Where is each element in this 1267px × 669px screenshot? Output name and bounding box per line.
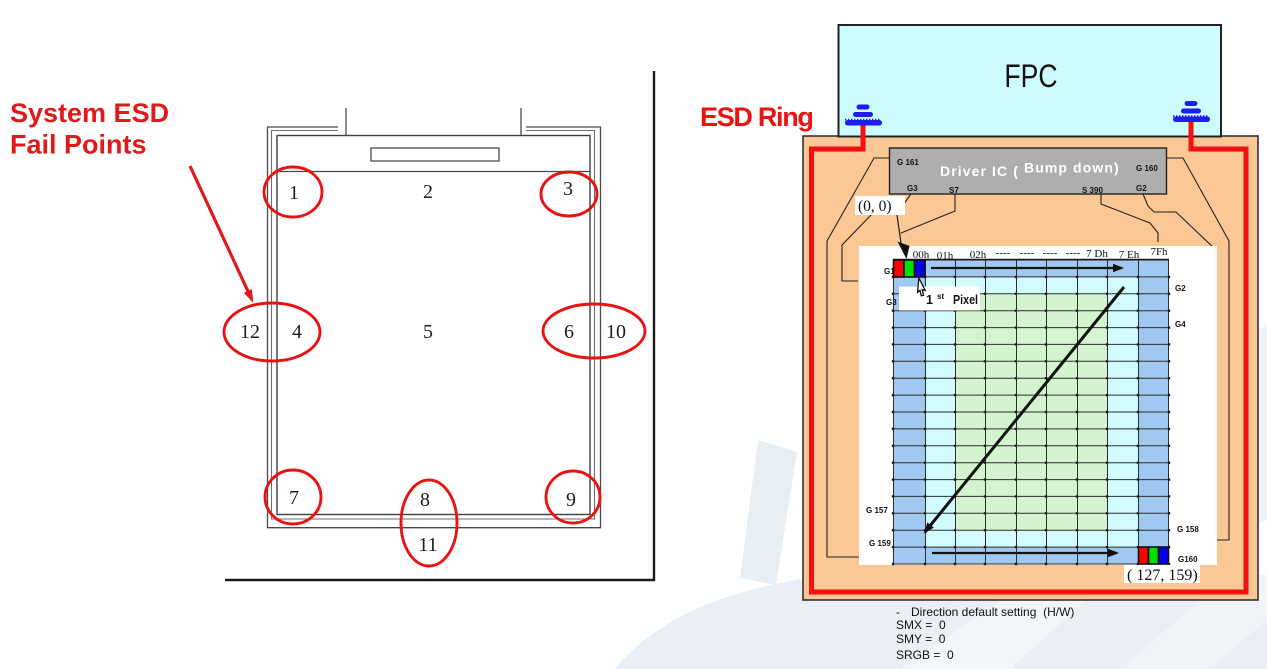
- svg-text:----: ----: [1043, 247, 1058, 259]
- svg-text:G 161: G 161: [897, 158, 919, 167]
- svg-text:G 157: G 157: [866, 506, 888, 515]
- svg-text:9: 9: [566, 489, 576, 511]
- svg-text:S7: S7: [949, 186, 959, 195]
- svg-text:----: ----: [996, 247, 1011, 259]
- svg-text:3: 3: [563, 178, 573, 200]
- svg-text:4: 4: [292, 321, 302, 343]
- svg-text:7Fh: 7Fh: [1150, 246, 1168, 258]
- svg-text:G2: G2: [1175, 284, 1186, 293]
- svg-text:00h: 00h: [913, 249, 930, 261]
- svg-text:ESD Ring: ESD Ring: [700, 102, 813, 132]
- svg-text:S 390: S 390: [1082, 186, 1103, 195]
- svg-text:FPC: FPC: [1004, 59, 1057, 95]
- svg-text:----: ----: [1020, 247, 1035, 259]
- svg-text:----: ----: [1066, 247, 1081, 259]
- svg-text:Direction default setting (H/: Direction default setting (H/W): [911, 605, 1074, 619]
- svg-text:G3: G3: [886, 298, 897, 307]
- svg-text:7 Dh: 7 Dh: [1086, 248, 1108, 260]
- svg-text:st: st: [937, 292, 944, 301]
- svg-text:12: 12: [240, 321, 260, 343]
- svg-text:8: 8: [420, 489, 430, 511]
- svg-text:G4: G4: [1175, 320, 1186, 329]
- svg-text:01h: 01h: [937, 250, 954, 262]
- svg-text:G 159: G 159: [869, 539, 891, 548]
- svg-text:G 158: G 158: [1177, 525, 1199, 534]
- svg-text:7: 7: [289, 487, 299, 509]
- svg-text:(0, 0): (0, 0): [858, 198, 892, 215]
- svg-text:SMX = 0: SMX = 0: [896, 618, 946, 632]
- svg-text:6: 6: [564, 321, 574, 343]
- svg-text:G 160: G 160: [1136, 164, 1158, 173]
- svg-text:SMY = 0: SMY = 0: [896, 632, 946, 646]
- svg-text:02h: 02h: [970, 249, 987, 261]
- svg-text:1: 1: [289, 182, 299, 204]
- svg-text:SRGB = 0: SRGB = 0: [896, 648, 954, 662]
- svg-text:System ESD: System ESD: [10, 98, 169, 128]
- svg-text:2: 2: [423, 181, 433, 203]
- svg-text:G1: G1: [884, 267, 895, 276]
- svg-text:5: 5: [423, 321, 433, 343]
- svg-text:Pixel: Pixel: [953, 293, 978, 307]
- svg-text:G3: G3: [907, 184, 918, 193]
- svg-text:Fail Points: Fail Points: [10, 130, 147, 160]
- svg-text:( 127, 159): ( 127, 159): [1127, 567, 1198, 584]
- svg-text:11: 11: [418, 534, 437, 556]
- svg-text:1: 1: [926, 293, 933, 307]
- svg-text:-: -: [896, 605, 900, 619]
- svg-text:7 Eh: 7 Eh: [1119, 249, 1140, 261]
- svg-text:10: 10: [606, 321, 626, 343]
- svg-text:G2: G2: [1136, 184, 1147, 193]
- svg-text:G160: G160: [1178, 555, 1198, 564]
